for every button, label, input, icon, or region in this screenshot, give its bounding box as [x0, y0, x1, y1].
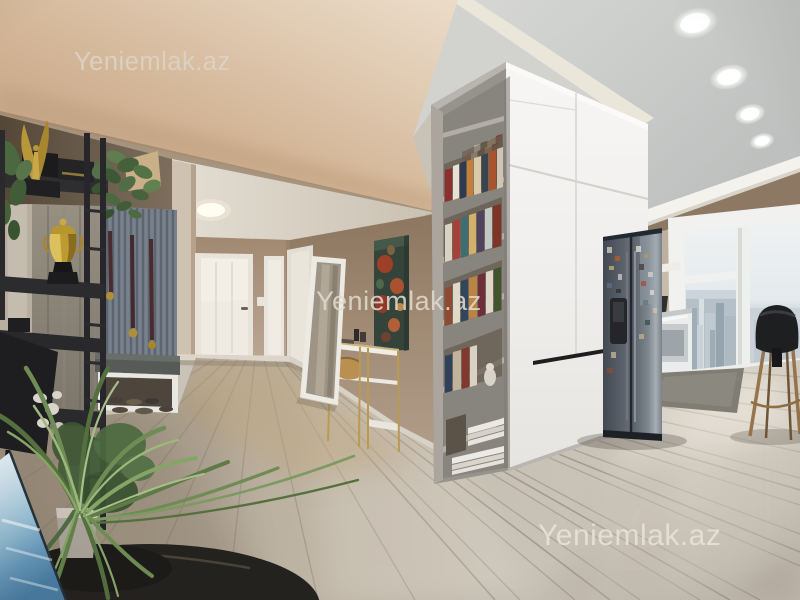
- svg-text:Yeniemlak.az: Yeniemlak.az: [316, 286, 482, 316]
- svg-text:Yeniemlak.az: Yeniemlak.az: [538, 519, 721, 552]
- svg-text:Yeniemlak.az: Yeniemlak.az: [74, 48, 231, 76]
